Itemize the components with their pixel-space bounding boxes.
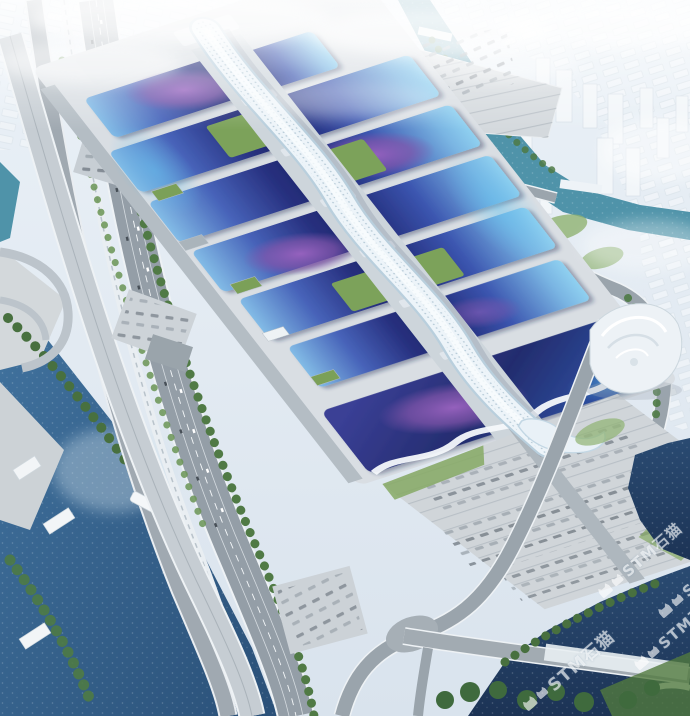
- rendering-scene: [0, 0, 690, 716]
- spiral-building: [586, 304, 682, 400]
- aerial-rendering-exhibition-center: STM石猫 STM石猫 STM石猫 STM石猫: [0, 0, 690, 716]
